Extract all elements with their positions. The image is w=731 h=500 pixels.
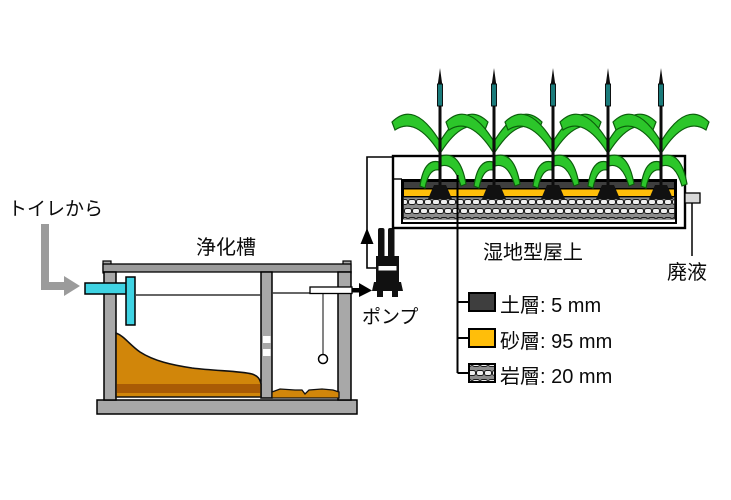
legend-label-rock: 岩層: 20 mm xyxy=(500,360,612,389)
legend-label-soil: 土層: 5 mm xyxy=(500,289,601,318)
outlet-arrow-icon xyxy=(359,283,372,297)
legend-swatch-rock xyxy=(469,364,495,382)
tank-divider xyxy=(261,272,272,398)
inlet-pipe-horizontal xyxy=(85,283,128,294)
diagram-canvas xyxy=(0,0,731,500)
legend-swatch-soil xyxy=(469,293,495,311)
divider-slot xyxy=(263,336,271,343)
inlet-pipe-vertical xyxy=(126,277,135,325)
label-septic-tank: 浄化槽 xyxy=(196,231,256,260)
tank-lid xyxy=(103,264,351,272)
septic-tank xyxy=(85,261,372,414)
drain-pipe xyxy=(685,193,700,203)
label-wetland-rooftop: 湿地型屋上 xyxy=(483,236,583,265)
tank-base xyxy=(97,400,357,414)
outlet-pipe xyxy=(310,287,352,294)
outlet-arrow-shaft xyxy=(352,288,360,293)
rock-layer xyxy=(404,197,675,219)
from-toilet-arrow-icon xyxy=(45,224,80,296)
wastewater-treatment-diagram: トイレから 浄化槽 ポンプ 湿地型屋上 廃液 土層: 5 mm 砂層: 95 m… xyxy=(0,0,731,500)
legend-swatch-sand xyxy=(469,329,495,347)
sludge-secondary xyxy=(272,389,339,398)
float-sensor xyxy=(319,355,328,364)
label-pump: ポンプ xyxy=(362,302,418,329)
legend-label-sand: 砂層: 95 mm xyxy=(500,325,612,354)
sludge-dark-band xyxy=(117,384,260,393)
label-from-toilet: トイレから xyxy=(8,194,103,221)
divider-slot xyxy=(263,349,271,356)
pump-icon xyxy=(372,228,403,297)
up-arrow-icon xyxy=(361,228,374,244)
label-waste-liquid: 廃液 xyxy=(667,256,707,285)
